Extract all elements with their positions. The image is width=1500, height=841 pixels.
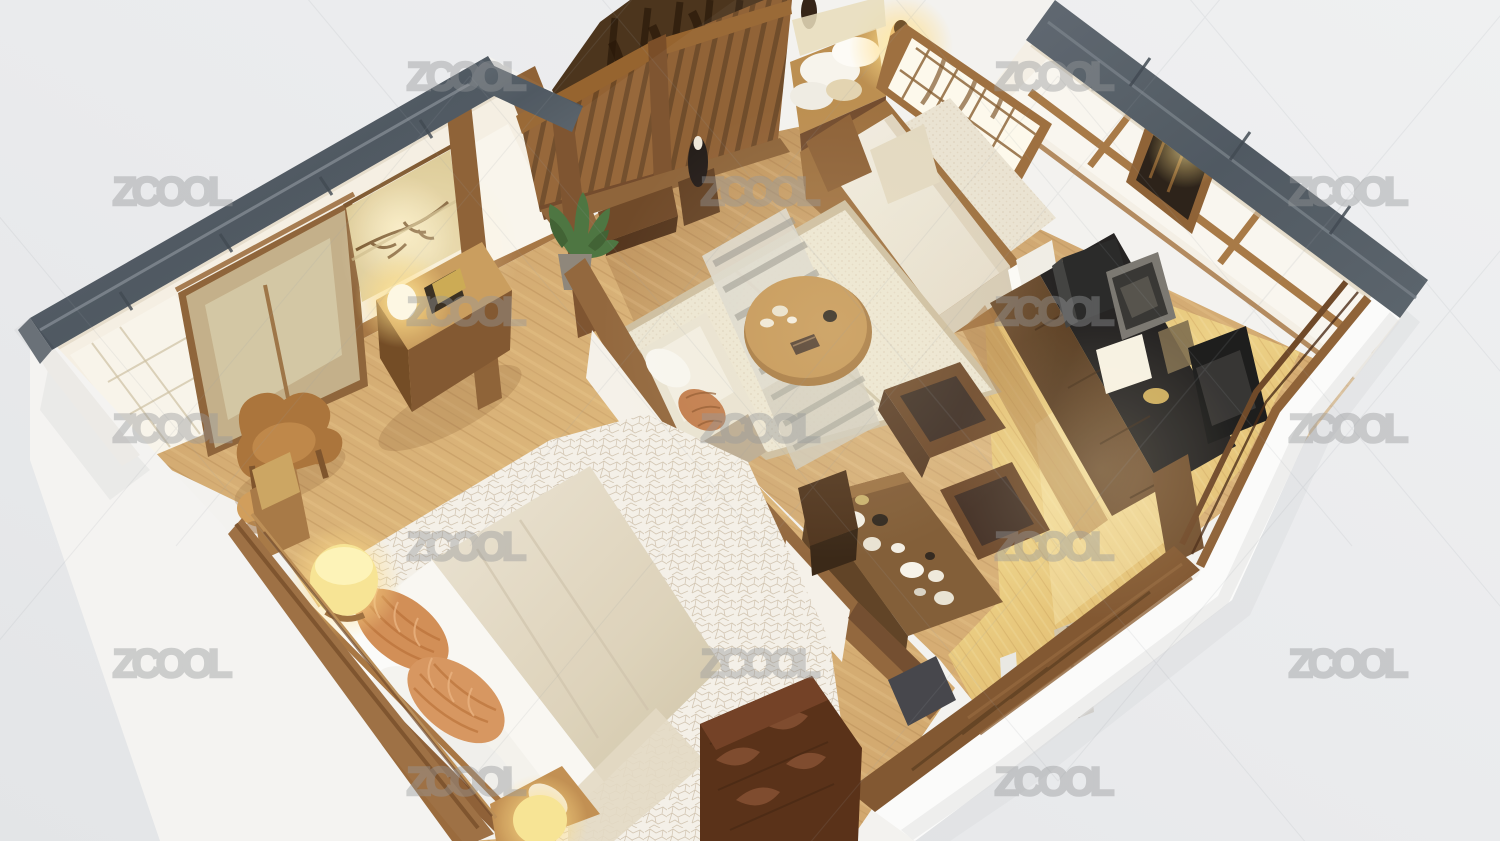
svg-text:ZCOOL: ZCOOL: [995, 760, 1115, 804]
svg-text:ZCOOL: ZCOOL: [995, 290, 1115, 334]
svg-text:ZCOOL: ZCOOL: [701, 170, 821, 214]
svg-text:ZCOOL: ZCOOL: [113, 407, 233, 451]
svg-text:ZCOOL: ZCOOL: [701, 407, 821, 451]
svg-text:ZCOOL: ZCOOL: [113, 170, 233, 214]
svg-text:ZCOOL: ZCOOL: [1289, 170, 1409, 214]
svg-text:ZCOOL: ZCOOL: [701, 642, 821, 686]
svg-text:ZCOOL: ZCOOL: [995, 525, 1115, 569]
svg-text:ZCOOL: ZCOOL: [407, 290, 527, 334]
svg-text:ZCOOL: ZCOOL: [407, 760, 527, 804]
svg-text:ZCOOL: ZCOOL: [407, 55, 527, 99]
svg-text:ZCOOL: ZCOOL: [995, 55, 1115, 99]
svg-text:ZCOOL: ZCOOL: [1289, 407, 1409, 451]
svg-text:ZCOOL: ZCOOL: [1289, 642, 1409, 686]
svg-text:ZCOOL: ZCOOL: [407, 525, 527, 569]
svg-text:ZCOOL: ZCOOL: [113, 642, 233, 686]
